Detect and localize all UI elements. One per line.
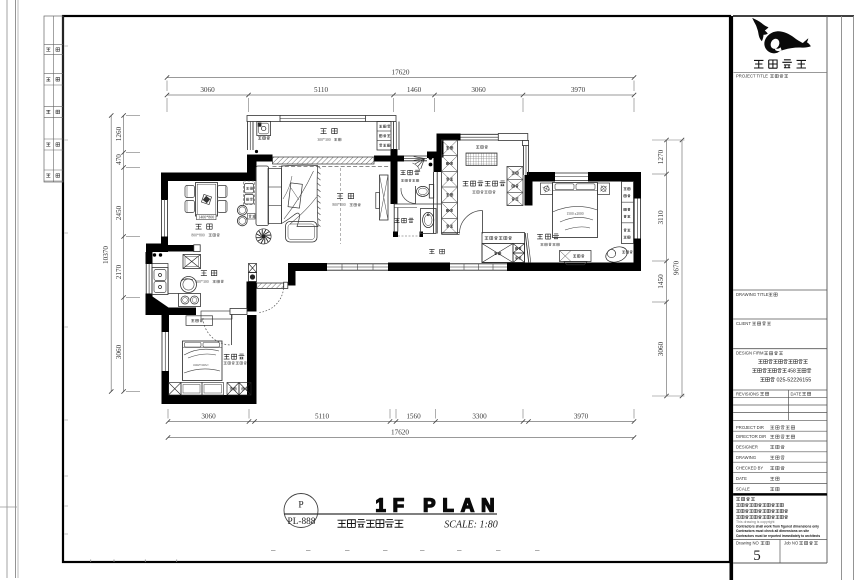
- svg-text:PROJECT TITLE: PROJECT TITLE: [736, 74, 768, 79]
- svg-text:9670: 9670: [673, 260, 681, 275]
- svg-text:DATE: DATE: [791, 391, 802, 396]
- svg-text:17620: 17620: [392, 69, 410, 77]
- svg-text:CLIENT: CLIENT: [736, 321, 751, 326]
- svg-text:1270: 1270: [657, 149, 665, 164]
- svg-text:458: 458: [788, 369, 797, 375]
- svg-text:300*300: 300*300: [195, 280, 208, 284]
- svg-text:3060: 3060: [657, 341, 665, 356]
- svg-text:2170: 2170: [115, 264, 123, 279]
- svg-text:Contractors shall work from fi: Contractors shall work from figured dime…: [736, 525, 819, 529]
- svg-text:Contractors must be reported i: Contractors must be reported immediately…: [736, 534, 820, 538]
- svg-text:3060: 3060: [115, 344, 123, 359]
- svg-text:2450: 2450: [115, 205, 123, 220]
- svg-text:3060: 3060: [200, 86, 215, 94]
- svg-text:5: 5: [753, 548, 761, 564]
- svg-text:DIRECTOR DIR: DIRECTOR DIR: [736, 434, 766, 439]
- svg-text:DESIGNER: DESIGNER: [736, 445, 758, 450]
- svg-text:17620: 17620: [391, 428, 409, 436]
- svg-text:Contractors must check all dim: Contractors must check all dimensions on…: [736, 529, 809, 533]
- svg-text:DATE: DATE: [736, 476, 747, 481]
- svg-text:DESIGN FIRM: DESIGN FIRM: [736, 351, 764, 356]
- svg-text:1500 x2000: 1500 x2000: [566, 212, 583, 216]
- svg-text:10370: 10370: [102, 246, 110, 264]
- svg-text:Drawing NO: Drawing NO: [736, 541, 760, 546]
- svg-text:1F PLAN: 1F PLAN: [375, 495, 501, 516]
- svg-text:CHECKED BY: CHECKED BY: [736, 466, 763, 471]
- svg-text:DRAWING TITLE: DRAWING TITLE: [736, 292, 769, 297]
- svg-text:300*300: 300*300: [317, 138, 330, 142]
- svg-text:REVISIONS: REVISIONS: [736, 391, 759, 396]
- svg-text:1260: 1260: [115, 126, 123, 141]
- svg-text:1560: 1560: [406, 412, 421, 420]
- svg-text:3110: 3110: [657, 210, 665, 225]
- svg-text:1450: 1450: [657, 274, 665, 289]
- svg-text:Job NO: Job NO: [784, 541, 799, 546]
- svg-text:3060: 3060: [471, 86, 486, 94]
- svg-text:PL-888: PL-888: [288, 517, 316, 527]
- svg-text:470: 470: [115, 154, 123, 165]
- svg-text:5110: 5110: [314, 86, 329, 94]
- svg-text:3300: 3300: [472, 412, 487, 420]
- svg-text:SCALE: SCALE: [736, 487, 750, 492]
- svg-text:5110: 5110: [315, 412, 330, 420]
- svg-text:800*800: 800*800: [191, 233, 204, 237]
- svg-text:1400*800: 1400*800: [198, 214, 214, 219]
- svg-text:800*800: 800*800: [332, 203, 345, 207]
- svg-text:3970: 3970: [571, 86, 586, 94]
- svg-text:P: P: [298, 501, 303, 511]
- svg-text:SCALE: 1:80: SCALE: 1:80: [444, 520, 498, 531]
- svg-text:025-52226155: 025-52226155: [777, 378, 812, 384]
- svg-text:DRAWING: DRAWING: [736, 455, 756, 460]
- svg-text:3970: 3970: [574, 412, 589, 420]
- svg-text:This drawing is copyright: This drawing is copyright: [736, 520, 775, 524]
- svg-text:1460: 1460: [407, 86, 422, 94]
- svg-text:1500x2000: 1500x2000: [193, 363, 209, 367]
- svg-text:PROJECT DIR: PROJECT DIR: [736, 425, 764, 430]
- svg-text:3060: 3060: [201, 412, 216, 420]
